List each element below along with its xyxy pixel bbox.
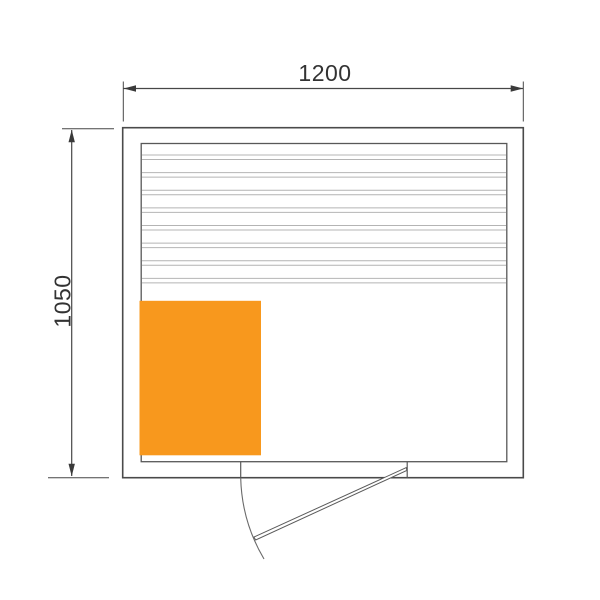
width-dimension: 1200 xyxy=(123,60,523,122)
width-arrow-left-icon xyxy=(124,85,137,91)
height-arrow-bottom-icon xyxy=(69,464,75,477)
door-swing-arc xyxy=(241,478,264,559)
floor-plan-canvas: 1200 1050 xyxy=(0,0,600,600)
width-dimension-label: 1200 xyxy=(298,60,351,86)
heater-block xyxy=(140,301,262,456)
floor-plan-drawing: 1200 1050 xyxy=(0,0,600,600)
sauna-room xyxy=(123,128,524,559)
width-arrow-right-icon xyxy=(511,85,524,91)
height-arrow-top-icon xyxy=(69,130,75,143)
height-dimension-label: 1050 xyxy=(50,274,76,327)
height-dimension: 1050 xyxy=(48,129,114,478)
bench-slats xyxy=(142,155,506,283)
